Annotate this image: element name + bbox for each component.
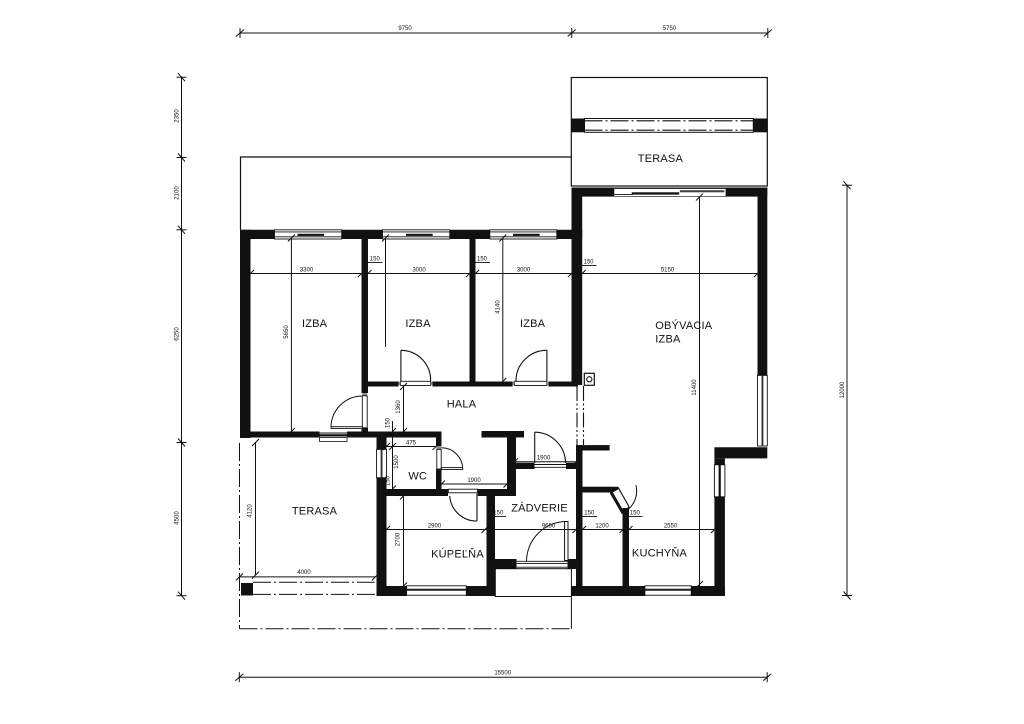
svg-text:5150: 5150 xyxy=(661,268,675,274)
svg-text:TERASA: TERASA xyxy=(292,506,338,518)
svg-text:IZBA: IZBA xyxy=(302,318,328,330)
svg-text:IZBA: IZBA xyxy=(655,334,681,346)
svg-text:4500: 4500 xyxy=(175,511,181,525)
svg-text:475: 475 xyxy=(406,441,417,447)
svg-text:3000: 3000 xyxy=(517,268,531,274)
svg-text:1900: 1900 xyxy=(537,456,551,462)
svg-text:IZBA: IZBA xyxy=(520,318,546,330)
svg-text:15500: 15500 xyxy=(494,671,511,677)
svg-text:KUCHYŇA: KUCHYŇA xyxy=(632,547,688,560)
svg-text:2100: 2100 xyxy=(175,186,181,200)
svg-text:1900: 1900 xyxy=(467,478,481,484)
svg-text:2350: 2350 xyxy=(175,109,181,123)
svg-text:150: 150 xyxy=(386,475,392,486)
svg-text:4140: 4140 xyxy=(496,300,502,314)
svg-text:1360: 1360 xyxy=(396,400,402,414)
svg-text:150: 150 xyxy=(493,511,504,517)
svg-text:2550: 2550 xyxy=(664,524,678,530)
svg-text:150: 150 xyxy=(386,417,392,428)
svg-text:4120: 4120 xyxy=(248,504,254,518)
svg-text:5650: 5650 xyxy=(284,325,290,339)
svg-text:9650: 9650 xyxy=(542,524,556,530)
svg-text:150: 150 xyxy=(477,257,488,263)
svg-text:6250: 6250 xyxy=(175,327,181,341)
svg-text:150: 150 xyxy=(370,257,381,263)
svg-text:ZÁDVERIE: ZÁDVERIE xyxy=(511,502,568,515)
svg-text:OBÝVACIA: OBÝVACIA xyxy=(655,319,712,332)
svg-text:WC: WC xyxy=(408,471,427,483)
svg-text:11400: 11400 xyxy=(692,379,698,396)
svg-text:HALA: HALA xyxy=(447,399,477,411)
svg-text:1200: 1200 xyxy=(595,524,609,530)
svg-text:2700: 2700 xyxy=(396,532,402,546)
svg-text:KÚPEĽŇA: KÚPEĽŇA xyxy=(431,548,484,561)
svg-text:IZBA: IZBA xyxy=(405,318,431,330)
svg-text:9750: 9750 xyxy=(398,26,412,32)
svg-text:3300: 3300 xyxy=(300,268,314,274)
svg-text:3000: 3000 xyxy=(412,268,426,274)
svg-text:2900: 2900 xyxy=(428,524,442,530)
svg-text:5750: 5750 xyxy=(663,26,677,32)
svg-text:12000: 12000 xyxy=(840,381,846,398)
svg-text:150: 150 xyxy=(630,511,641,517)
svg-text:TERASA: TERASA xyxy=(638,153,684,165)
svg-text:1500: 1500 xyxy=(394,455,400,469)
svg-text:150: 150 xyxy=(584,511,595,517)
svg-text:150: 150 xyxy=(583,260,594,266)
svg-text:4000: 4000 xyxy=(297,570,311,576)
